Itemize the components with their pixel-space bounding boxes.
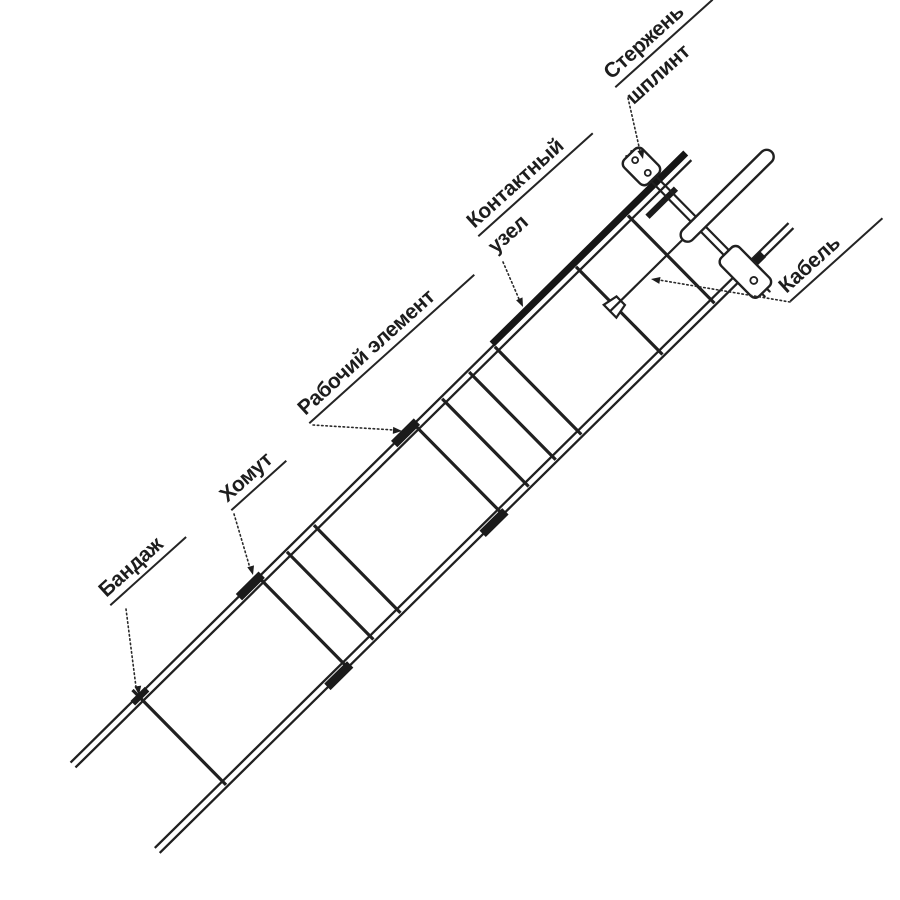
rung-clamp2-c [470, 373, 554, 458]
leader-rabochiy [313, 425, 394, 430]
diagram-canvas: Бандаж Хомут Рабочий элемент Контактный … [0, 0, 900, 900]
cable-terminal-rod [678, 147, 777, 245]
arrowhead-kontaktny [516, 297, 523, 307]
leader-bandazh [126, 609, 136, 687]
arrowhead-kabel [651, 277, 661, 284]
rail-lower [155, 223, 794, 853]
leader-lines [126, 98, 790, 687]
leader-arrowheads [134, 149, 660, 695]
rung [496, 348, 580, 433]
rung-clamp1-a [261, 580, 345, 665]
arrowhead-khomut [247, 565, 254, 575]
rung-clamp2-b [443, 400, 527, 485]
leader-khomut [234, 514, 250, 568]
rung-clamp1-c [315, 526, 399, 611]
structure-drawing [0, 0, 900, 900]
rung-clamp1-b [288, 553, 372, 638]
leader-kontaktny [503, 262, 519, 299]
cable-line [609, 238, 684, 312]
rung [134, 691, 225, 784]
rung-clamp2-a [416, 427, 500, 512]
ladder-structure [41, 81, 840, 873]
rail-upper [71, 155, 692, 767]
